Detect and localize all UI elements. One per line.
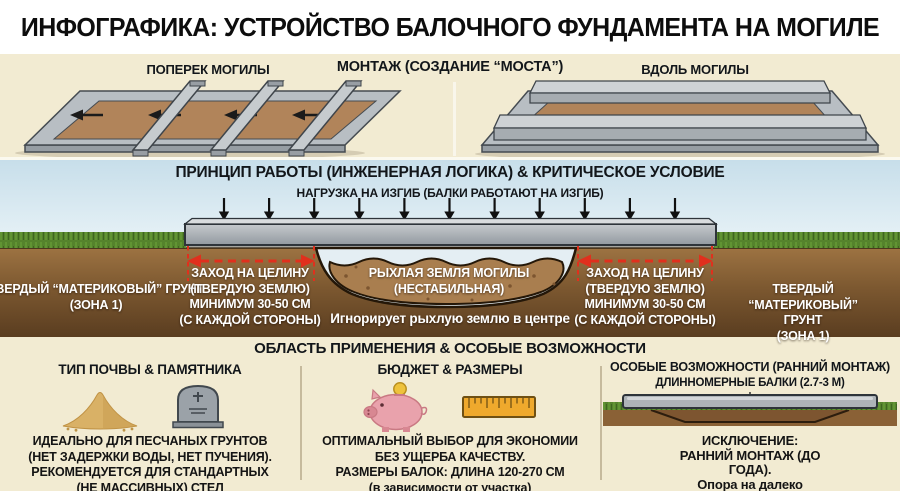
mini-grave-pit	[651, 410, 849, 422]
loose-soil-label: РЫХЛАЯ ЗЕМЛЯ МОГИЛЫ (НЕСТАБИЛЬНАЯ)	[369, 266, 529, 297]
montage-divider	[453, 82, 456, 156]
budget-text: ОПТИМАЛЬНЫЙ ВЫБОР ДЛЯ ЭКОНОМИИ БЕЗ УЩЕРБ…	[322, 434, 578, 491]
overlap-label-right: ЗАХОД НА ЦЕЛИНУ (ТВЕРДУЮ ЗЕМЛЮ) МИНИМУМ …	[574, 266, 715, 329]
column-divider-1	[300, 366, 302, 480]
infographic-root: ИНФОГРАФИКА: УСТРОЙСТВО БАЛОЧНОГО ФУНДАМ…	[0, 0, 900, 491]
soil-type-text: ИДЕАЛЬНО ДЛЯ ПЕСЧАНЫХ ГРУНТОВ (НЕТ ЗАДЕР…	[28, 434, 272, 491]
hard-ground-label-right: ТВЕРДЫЙ “МАТЕРИКОВЫЙ” ГРУНТ (ЗОНА 1)	[748, 282, 858, 345]
long-beam-diagram	[603, 392, 897, 430]
lengthwise-beams-diagram	[475, 81, 885, 160]
column-divider-2	[600, 366, 602, 480]
soil-type-title: ТИП ПОЧВЫ & ПАМЯТНИКА	[58, 362, 241, 379]
overlap-label-left: ЗАХОД НА ЦЕЛИНУ (ТВЕРДУЮ ЗЕМЛЮ) МИНИМУМ …	[179, 266, 320, 329]
foundation-beam	[185, 224, 716, 245]
mini-beam	[623, 395, 877, 408]
budget-title: БЮДЖЕТ & РАЗМЕРЫ	[378, 362, 523, 379]
applications-heading: ОБЛАСТЬ ПРИМЕНЕНИЯ & ОСОБЫЕ ВОЗМОЖНОСТИ	[254, 340, 646, 359]
gravestone-icon	[172, 384, 224, 429]
hard-ground-label-left: ТВЕРДЫЙ “МАТЕРИКОВЫЙ” ГРУНТ (ЗОНА 1)	[0, 282, 204, 313]
principle-heading: ПРИНЦИП РАБОТЫ (ИНЖЕНЕРНАЯ ЛОГИКА) & КРИ…	[175, 163, 724, 182]
title-bar: ИНФОГРАФИКА: УСТРОЙСТВО БАЛОЧНОГО ФУНДАМ…	[0, 0, 900, 54]
along-grave-label: ВДОЛЬ МОГИЛЫ	[641, 62, 748, 78]
long-beam-label: ДЛИННОМЕРНЫЕ БАЛКИ (2.7-3 М)	[655, 376, 844, 390]
foundation-beam-top	[185, 219, 716, 225]
cross-beams-diagram	[15, 81, 400, 159]
grass-left	[0, 232, 186, 248]
montage-heading: МОНТАЖ (СОЗДАНИЕ “МОСТА”)	[337, 58, 563, 76]
special-title: ОСОБЫЕ ВОЗМОЖНОСТИ (РАННИЙ МОНТАЖ)	[610, 360, 890, 376]
ignore-note: Игнорирует рыхлую землю в центре	[330, 311, 570, 328]
page-title: ИНФОГРАФИКА: УСТРОЙСТВО БАЛОЧНОГО ФУНДАМ…	[21, 12, 879, 43]
across-grave-label: ПОПЕРЕК МОГИЛЫ	[146, 62, 269, 78]
ruler-icon	[462, 396, 536, 418]
special-text: ИСКЛЮЧЕНИЕ: РАННИЙ МОНТАЖ (ДО ГОДА). Опо…	[675, 434, 825, 491]
grass-right	[714, 232, 900, 248]
load-label: НАГРУЗКА НА ИЗГИБ (БАЛКИ РАБОТАЮТ НА ИЗГ…	[297, 186, 604, 201]
sand-pile-icon	[60, 388, 140, 432]
piggy-bank-icon	[358, 382, 432, 432]
